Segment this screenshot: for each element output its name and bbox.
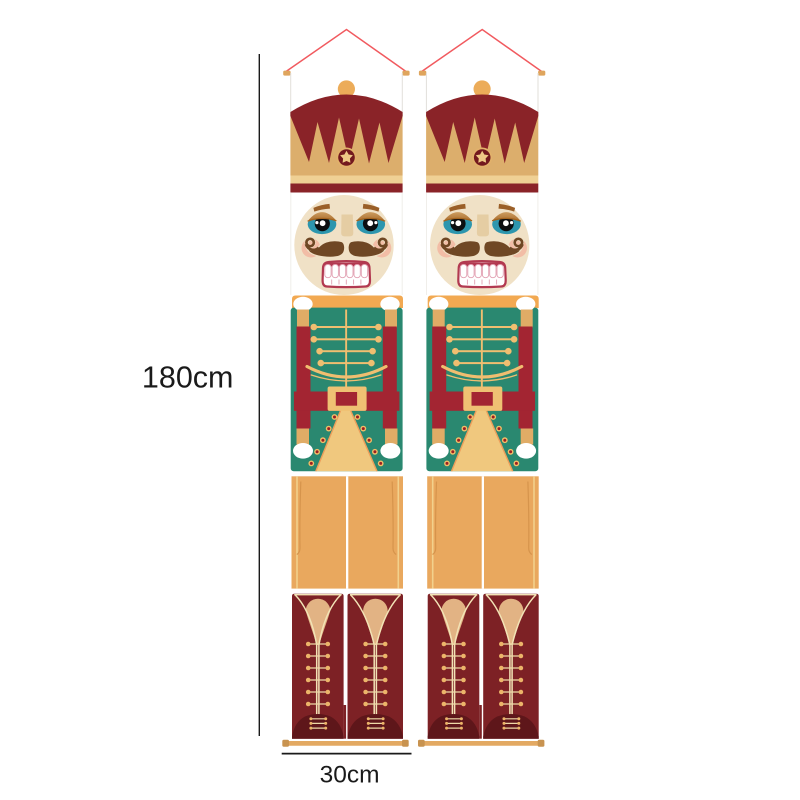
svg-text:180cm: 180cm: [142, 360, 234, 394]
svg-text:30cm: 30cm: [320, 762, 380, 789]
